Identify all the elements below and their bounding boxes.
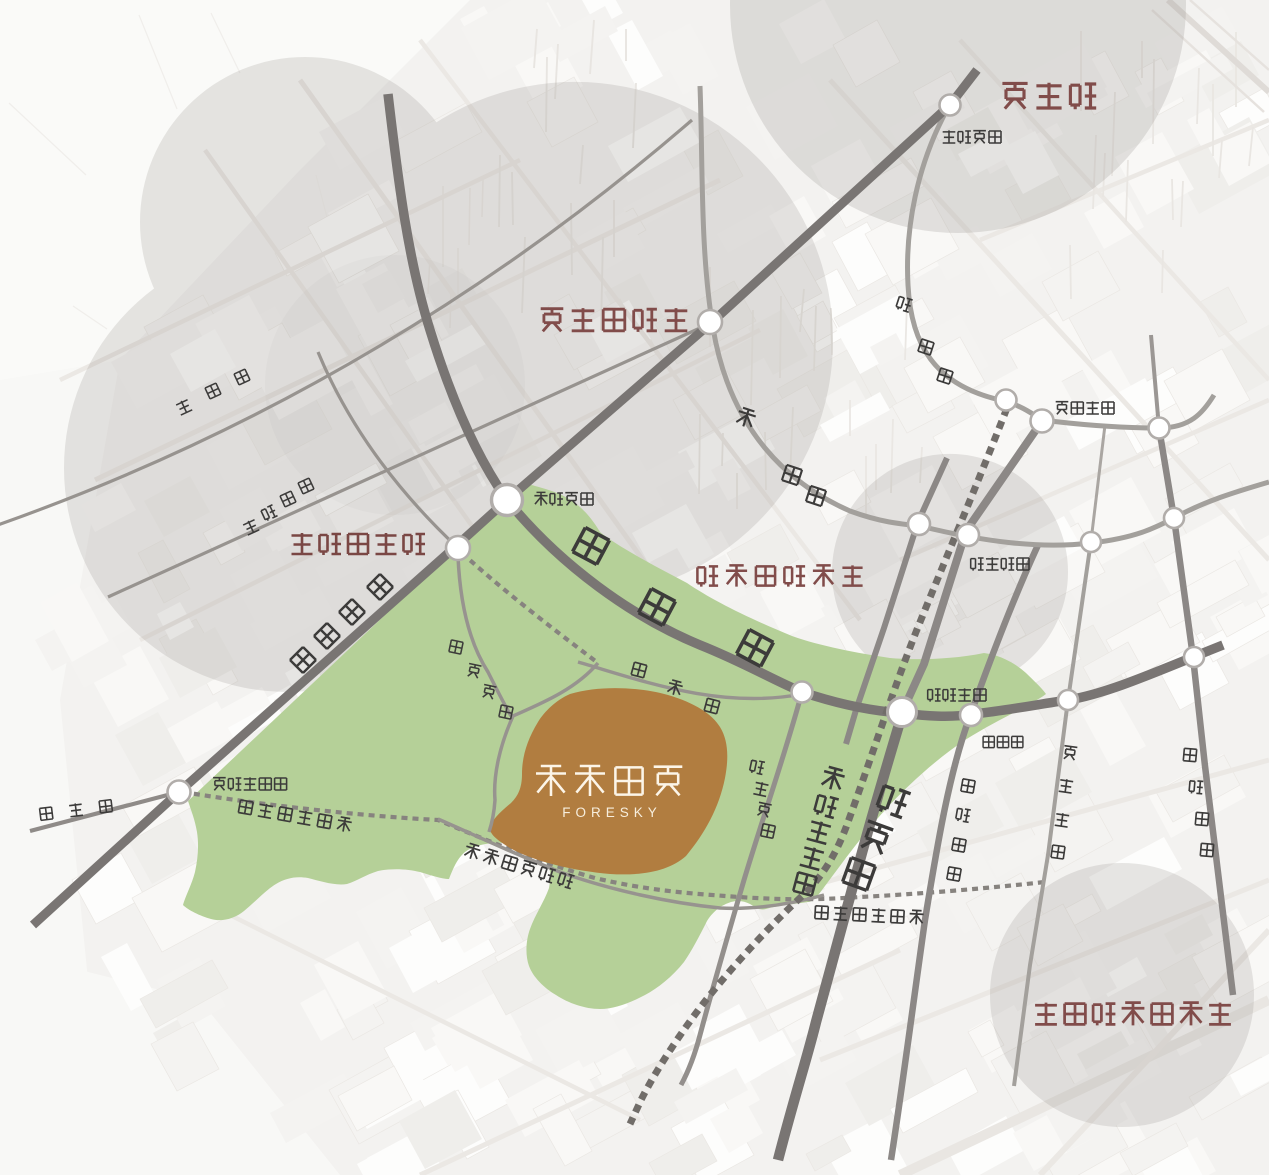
svg-text:FORESKY: FORESKY xyxy=(562,805,662,820)
